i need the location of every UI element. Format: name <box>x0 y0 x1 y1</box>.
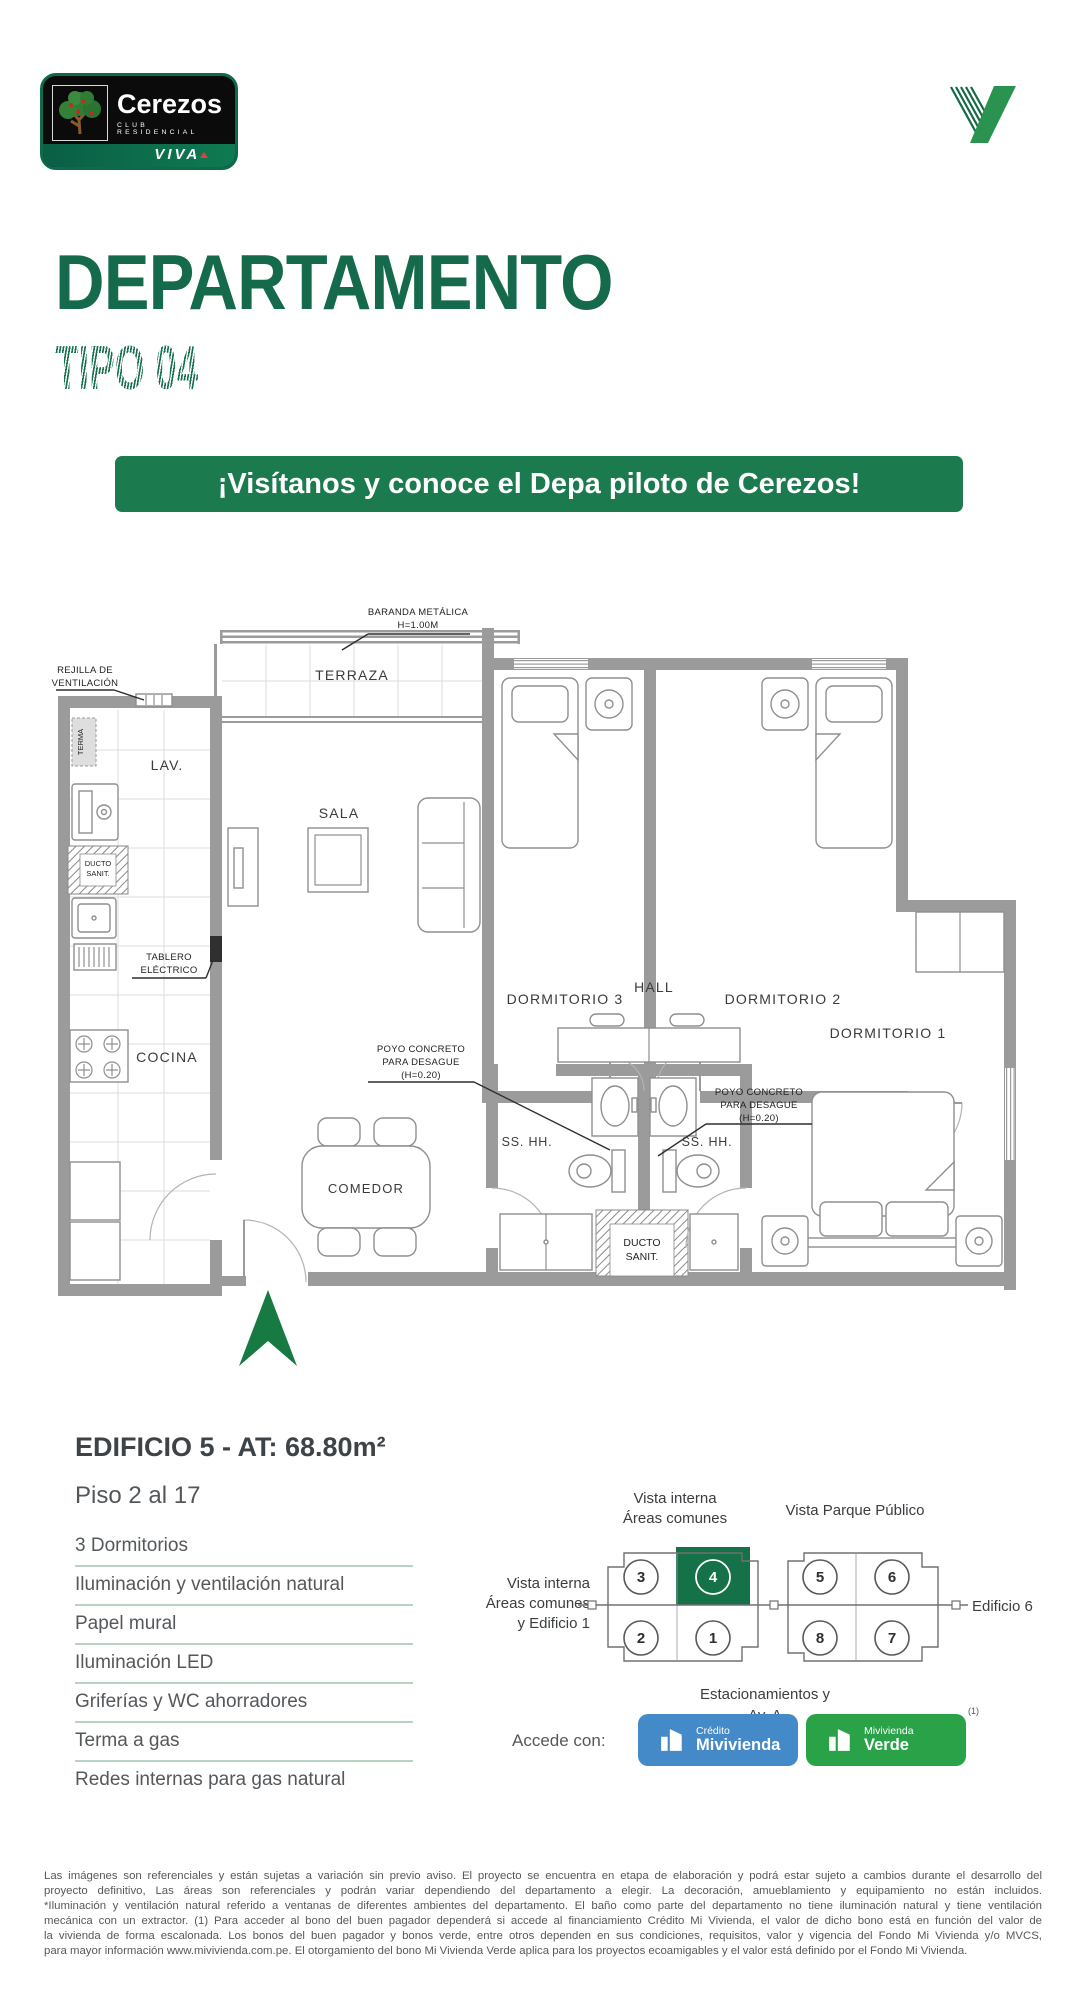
keyplan-label-top-right: Vista Parque Público <box>786 1502 925 1519</box>
feature-list: 3 Dormitorios Iluminación y ventilación … <box>75 1528 413 1799</box>
feature-item: 3 Dormitorios <box>75 1528 413 1567</box>
legal-disclaimer: Las imágenes son referenciales y están s… <box>44 1869 1042 1958</box>
room-label-dormitorio1: DORMITORIO 1 <box>830 1025 947 1041</box>
kitchen-furniture <box>70 694 222 1280</box>
feature-item: Papel mural <box>75 1606 413 1645</box>
legal-line: *Iluminación y ventilación natural refer… <box>44 1899 1042 1914</box>
legal-line: mecánica con un extractor. (1) Para acce… <box>44 1914 1042 1929</box>
cerezos-logo: Cerezos CLUB RESIDENCIAL VIVA <box>40 73 238 170</box>
bedroom2-furniture <box>762 678 892 848</box>
viva-strip: VIVA <box>43 144 235 167</box>
room-label-hall: HALL <box>634 979 674 995</box>
logo-name: Cerezos <box>117 91 227 118</box>
badge-line2: Verde <box>864 1737 914 1754</box>
annotation-poyo-left-3: (H=0.20) <box>401 1070 441 1081</box>
unit-number: 8 <box>816 1630 824 1647</box>
bedroom3-furniture <box>502 678 632 848</box>
building-floors: Piso 2 al 17 <box>75 1482 200 1510</box>
keyplan-label-right: Edificio 6 <box>972 1598 1033 1615</box>
mivivienda-building-icon <box>658 1727 686 1753</box>
feature-item: Terma a gas <box>75 1723 413 1762</box>
unit-number-highlighted: 4 <box>709 1569 718 1586</box>
room-label-dormitorio3: DORMITORIO 3 <box>507 991 624 1007</box>
credito-mivivienda-badge[interactable]: Crédito Mivivienda <box>638 1714 798 1766</box>
keyplan: Vista interna Áreas comunes Vista Parque… <box>440 1485 1040 1735</box>
annotation-poyo-left-2: PARA DESAGUE <box>382 1057 459 1068</box>
electrical-panel-icon <box>210 936 222 962</box>
room-label-sshh-left: SS. HH. <box>502 1135 553 1149</box>
annotation-poyo-right-2: PARA DESAGUE <box>720 1100 797 1111</box>
annotation-terma: TERMA <box>76 729 85 755</box>
unit-number: 2 <box>637 1630 645 1647</box>
annotation-poyo-left-1: POYO CONCRETO <box>377 1044 465 1055</box>
viva-label: VIVA <box>154 146 200 163</box>
viva-v-icon <box>948 86 1018 144</box>
feature-item: Griferías y WC ahorradores <box>75 1684 413 1723</box>
annotation-tablero-2: ELÉCTRICO <box>140 965 197 976</box>
badge-line2: Mivivienda <box>696 1737 780 1754</box>
unit-number: 6 <box>888 1569 896 1586</box>
room-label-cocina: COCINA <box>136 1049 198 1065</box>
annotation-baranda-2: H=1.00M <box>398 620 439 631</box>
keyplan-label-left-1: Vista interna <box>507 1575 591 1592</box>
logo-subtitle: CLUB RESIDENCIAL <box>117 122 227 136</box>
room-label-comedor: COMEDOR <box>328 1181 404 1196</box>
access-label: Accede con: <box>512 1731 606 1751</box>
annotation-ducto-bottom-1: DUCTO <box>623 1237 660 1249</box>
feature-item: Iluminación LED <box>75 1645 413 1684</box>
annotation-rejilla-1: REJILLA DE <box>57 665 113 676</box>
annotation-tablero-1: TABLERO <box>146 952 192 963</box>
promo-banner: ¡Visítanos y conoce el Depa piloto de Ce… <box>115 456 963 512</box>
keyplan-label-left-3: y Edificio 1 <box>517 1615 590 1632</box>
annotation-poyo-right-3: (H=0.20) <box>739 1113 779 1124</box>
feature-item: Redes internas para gas natural <box>75 1762 413 1799</box>
viva-accent-icon <box>200 152 208 158</box>
annotation-ducto-kitchen-2: SANIT. <box>86 869 109 878</box>
annotation-poyo-right-1: POYO CONCRETO <box>715 1087 803 1098</box>
unit-number: 1 <box>709 1630 717 1647</box>
legal-line: para mayor información www.mivivienda.co… <box>44 1944 1042 1959</box>
keyplan-label-bottom-1: Estacionamientos y <box>700 1686 831 1703</box>
room-label-terraza: TERRAZA <box>315 667 389 683</box>
keyplan-label-top-left-2: Áreas comunes <box>623 1510 727 1527</box>
floorplan: TERRAZA LAV. SALA DORMITORIO 3 DORMITORI… <box>50 600 1020 1370</box>
room-label-sshh-right: SS. HH. <box>682 1135 733 1149</box>
cherry-tree-icon <box>52 85 108 141</box>
annotation-ducto-bottom-2: SANIT. <box>626 1251 659 1263</box>
annotation-baranda-1: BARANDA METÁLICA <box>368 607 469 618</box>
building-title: EDIFICIO 5 - AT: 68.80m² <box>75 1432 386 1463</box>
keyplan-label-top-left-1: Vista interna <box>633 1490 717 1507</box>
north-arrow-icon <box>239 1290 297 1366</box>
room-label-lav: LAV. <box>151 757 184 773</box>
legal-line: Las imágenes son referenciales y están s… <box>44 1869 1042 1884</box>
unit-number: 5 <box>816 1569 824 1586</box>
badge-footnote-marker: (1) <box>968 1706 979 1716</box>
page-title: DEPARTAMENTO <box>55 243 613 321</box>
legal-line: la vivienda de forma escalonada. Los bon… <box>44 1929 1042 1944</box>
annotation-ducto-kitchen-1: DUCTO <box>85 859 112 868</box>
page-subtitle: TIPO 04 <box>55 338 198 400</box>
legal-line: proyecto definitivo, Las áreas son refer… <box>44 1884 1042 1899</box>
unit-number: 3 <box>637 1569 645 1586</box>
room-label-dormitorio2: DORMITORIO 2 <box>725 991 842 1007</box>
unit-markers: 3 4 5 6 2 1 8 7 <box>624 1560 909 1655</box>
mivivienda-building-icon <box>826 1727 854 1753</box>
keyplan-label-left-2: Áreas comunes <box>486 1595 590 1612</box>
promo-banner-text: ¡Visítanos y conoce el Depa piloto de Ce… <box>218 468 860 501</box>
mivivienda-verde-badge[interactable]: Mivivienda Verde <box>806 1714 966 1766</box>
annotation-rejilla-2: VENTILACIÓN <box>52 678 119 689</box>
room-label-sala: SALA <box>319 805 360 821</box>
unit-number: 7 <box>888 1630 896 1647</box>
feature-item: Iluminación y ventilación natural <box>75 1567 413 1606</box>
